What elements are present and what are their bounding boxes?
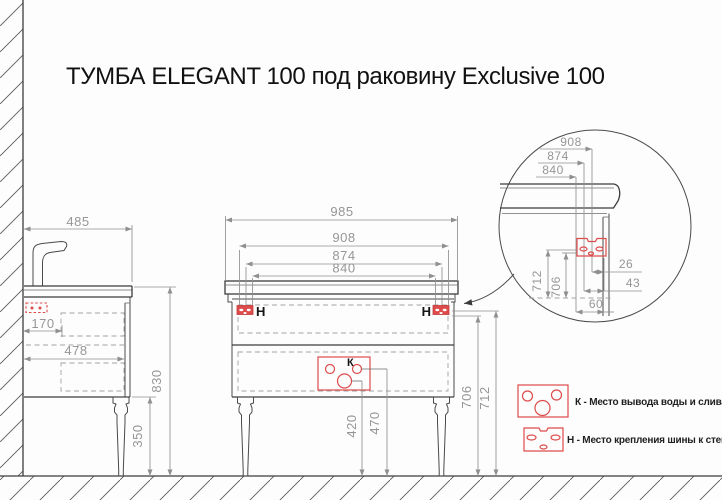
detail-leader-arrow — [464, 274, 514, 304]
right-ear — [451, 294, 455, 302]
h-rail-marker-left-icon — [237, 306, 253, 315]
legend-h-symbol-icon — [524, 428, 563, 451]
front-drawer2-dashed — [238, 352, 448, 391]
h-label-left: H — [256, 304, 265, 319]
dim-text-485: 485 — [66, 214, 89, 229]
legend: К - Место вывода воды и слива Н - Место … — [518, 385, 722, 451]
k-marker-side-icon — [26, 303, 47, 313]
dim-text-478: 478 — [64, 343, 87, 358]
dim-side-350: 350 — [130, 397, 156, 476]
front-leg-right — [434, 397, 450, 476]
drawer2-dashed — [61, 363, 124, 391]
detail-view: 908 874 840 26 43 — [464, 130, 691, 322]
dim-text-detail-60: 60 — [589, 297, 603, 311]
front-drawer1-dashed — [238, 305, 448, 333]
dim-front-420: 420 — [344, 381, 362, 476]
dim-detail-60: 60 — [576, 297, 614, 312]
dim-text-detail-43: 43 — [626, 276, 640, 290]
dim-text-420: 420 — [344, 414, 359, 437]
floor-hatch — [0, 476, 722, 500]
left-ear — [228, 294, 232, 302]
countertop-bullnose — [614, 184, 620, 208]
dim-text-detail-712: 712 — [530, 270, 544, 292]
dim-side-170: 170 — [23, 316, 62, 337]
legend-h-text: Н - Место крепления шины к стене — [567, 435, 722, 446]
dim-detail-43: 43 — [584, 258, 642, 291]
dim-text-908: 908 — [332, 230, 355, 245]
dim-front-470: 470 — [362, 369, 388, 476]
dim-front-874: 874 — [246, 248, 442, 305]
detail-circle — [499, 130, 691, 322]
wall-section — [0, 0, 23, 476]
dim-detail-26: 26 — [592, 257, 642, 272]
side-leg — [113, 397, 129, 476]
dim-text-detail-26: 26 — [619, 257, 633, 271]
dim-text-detail-874: 874 — [547, 149, 569, 163]
dim-text-830: 830 — [149, 369, 164, 392]
dim-text-detail-706: 706 — [549, 276, 563, 298]
side-view: 485 170 478 830 350 — [23, 214, 176, 476]
h-rail-marker-right-icon — [433, 306, 449, 315]
front-countertop — [225, 281, 458, 294]
dim-text-706: 706 — [459, 385, 474, 408]
wall-hatch — [0, 0, 23, 476]
dim-front-840: 840 — [253, 261, 436, 306]
dim-side-485: 485 — [24, 214, 132, 282]
front-leg-left — [238, 397, 254, 476]
technical-drawing-page: ТУМБА ELEGANT 100 под раковину Exclusive… — [0, 0, 722, 500]
legend-k-text: К - Место вывода воды и слива — [575, 397, 722, 408]
dim-text-350: 350 — [130, 424, 145, 447]
dim-text-840: 840 — [332, 261, 355, 276]
k-label-front: К — [347, 357, 354, 369]
dim-text-470: 470 — [367, 411, 382, 434]
front-view: 985 908 874 840 H — [225, 204, 499, 476]
dim-text-detail-908: 908 — [560, 135, 582, 149]
dim-detail-706: 706 — [549, 253, 577, 298]
dim-text-detail-840: 840 — [542, 163, 564, 177]
drawer1-dashed — [61, 313, 124, 336]
drawing-canvas: ТУМБА ELEGANT 100 под раковину Exclusive… — [0, 0, 722, 500]
faucet-profile — [33, 242, 67, 287]
legend-k-symbol-icon — [518, 385, 568, 417]
dim-text-712: 712 — [477, 386, 492, 409]
floor-section — [0, 476, 722, 500]
h-label-right: H — [422, 304, 431, 319]
h-rail-detail-icon — [577, 239, 606, 257]
dim-text-170: 170 — [31, 316, 54, 331]
page-title: ТУМБА ELEGANT 100 под раковину Exclusive… — [66, 63, 605, 90]
dim-text-985: 985 — [330, 204, 353, 219]
